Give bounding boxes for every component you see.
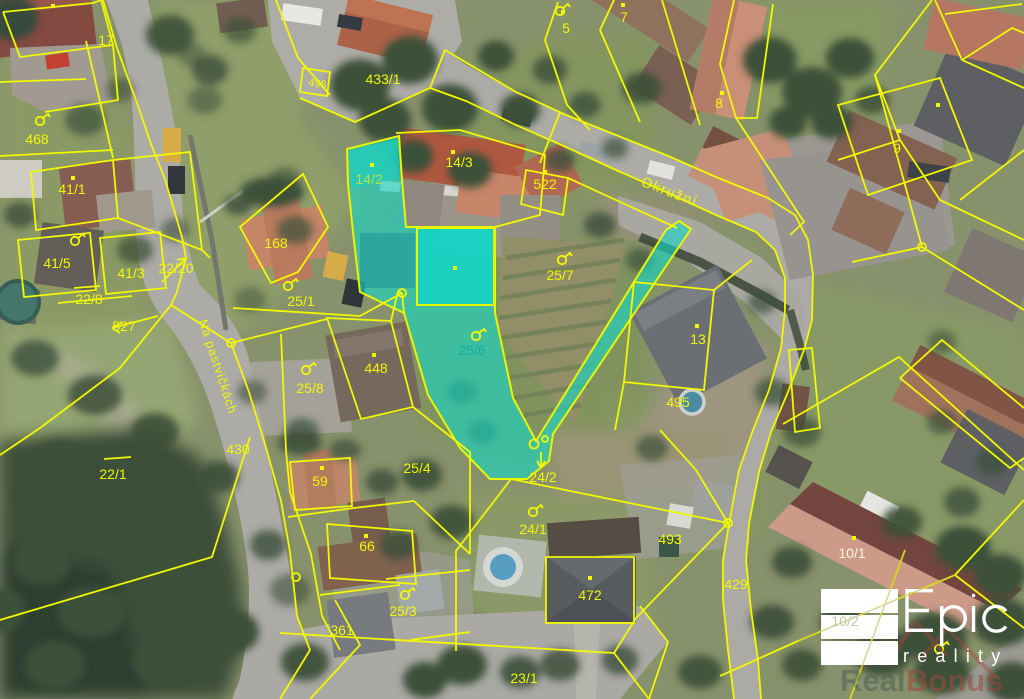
svg-text:14/2: 14/2 <box>355 171 382 187</box>
svg-text:430: 430 <box>226 441 250 457</box>
svg-text:10/2: 10/2 <box>831 613 858 629</box>
svg-text:25/1: 25/1 <box>287 293 314 309</box>
svg-text:24/2: 24/2 <box>529 469 556 485</box>
svg-text:Bonus: Bonus <box>906 663 1002 698</box>
svg-text:7: 7 <box>620 9 628 25</box>
svg-text:25/8: 25/8 <box>296 380 323 396</box>
svg-text:10/1: 10/1 <box>838 545 865 561</box>
svg-text:25/7: 25/7 <box>546 267 573 283</box>
svg-text:5: 5 <box>562 20 570 36</box>
svg-text:22/20: 22/20 <box>158 260 193 276</box>
svg-text:361: 361 <box>330 622 354 638</box>
svg-text:13: 13 <box>690 331 706 347</box>
svg-text:522: 522 <box>533 176 557 192</box>
svg-text:472: 472 <box>578 587 602 603</box>
svg-text:9: 9 <box>893 140 901 156</box>
svg-text:25/4: 25/4 <box>403 460 430 476</box>
svg-text:66: 66 <box>359 538 375 554</box>
svg-text:41/5: 41/5 <box>43 255 70 271</box>
svg-text:496: 496 <box>307 77 327 91</box>
svg-text:168: 168 <box>264 235 288 251</box>
svg-text:495: 495 <box>666 394 690 410</box>
svg-text:448: 448 <box>364 360 388 376</box>
svg-text:25/3: 25/3 <box>389 603 416 619</box>
svg-text:493: 493 <box>658 531 682 547</box>
svg-text:59: 59 <box>312 473 328 489</box>
svg-text:429: 429 <box>724 576 748 592</box>
svg-text:25/6: 25/6 <box>458 342 485 358</box>
svg-text:22/1: 22/1 <box>99 466 126 482</box>
svg-text:22/8: 22/8 <box>75 291 102 307</box>
svg-text:24/1: 24/1 <box>519 521 546 537</box>
svg-text:41/3: 41/3 <box>117 265 144 281</box>
svg-text:Real: Real <box>840 663 905 698</box>
svg-text:reality: reality <box>903 646 1008 666</box>
svg-text:433/1: 433/1 <box>365 71 400 87</box>
svg-text:14/3: 14/3 <box>445 154 472 170</box>
svg-text:8: 8 <box>715 95 723 111</box>
svg-text:17: 17 <box>98 32 114 48</box>
svg-text:527: 527 <box>112 318 136 334</box>
svg-text:23/1: 23/1 <box>510 670 537 686</box>
svg-text:41/1: 41/1 <box>58 181 85 197</box>
svg-text:468: 468 <box>25 131 49 147</box>
